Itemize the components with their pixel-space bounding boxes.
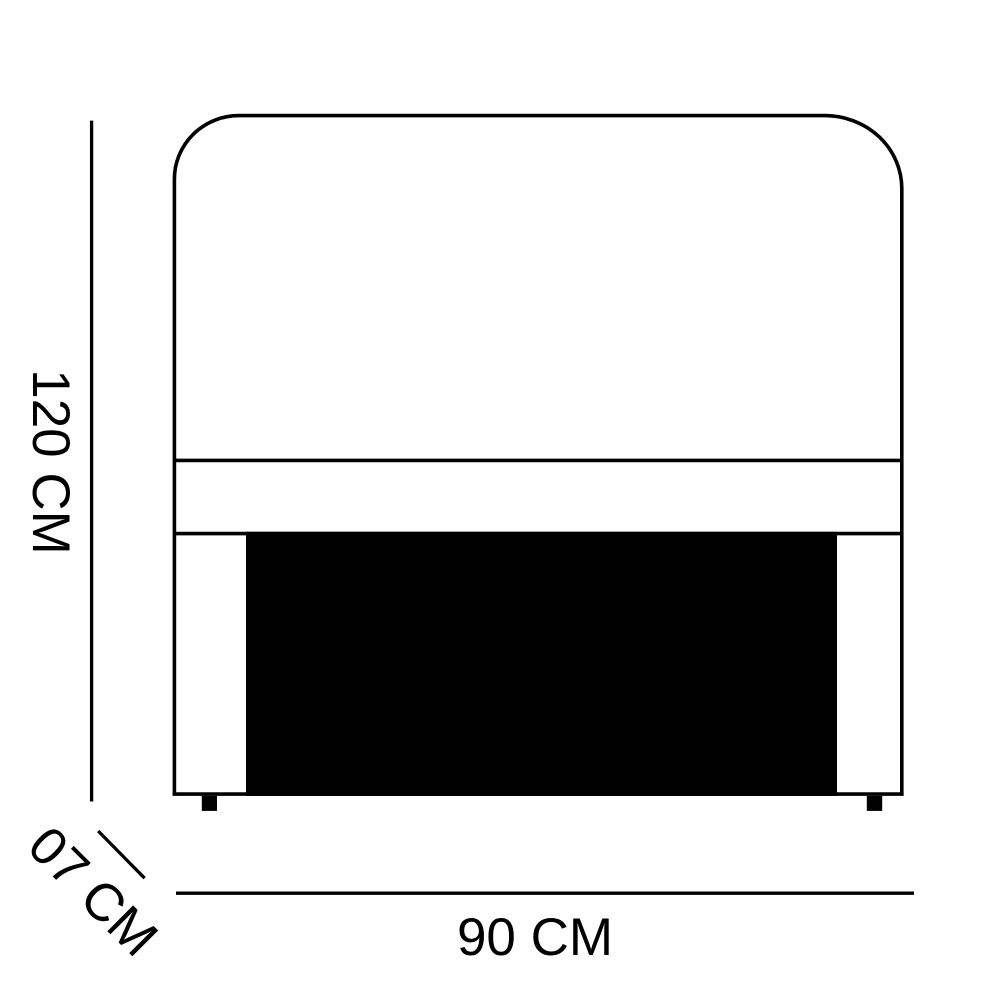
- svg-text:90 CM: 90 CM: [457, 908, 613, 967]
- svg-text:120 CM: 120 CM: [21, 369, 80, 555]
- svg-text:07 CM: 07 CM: [17, 816, 169, 968]
